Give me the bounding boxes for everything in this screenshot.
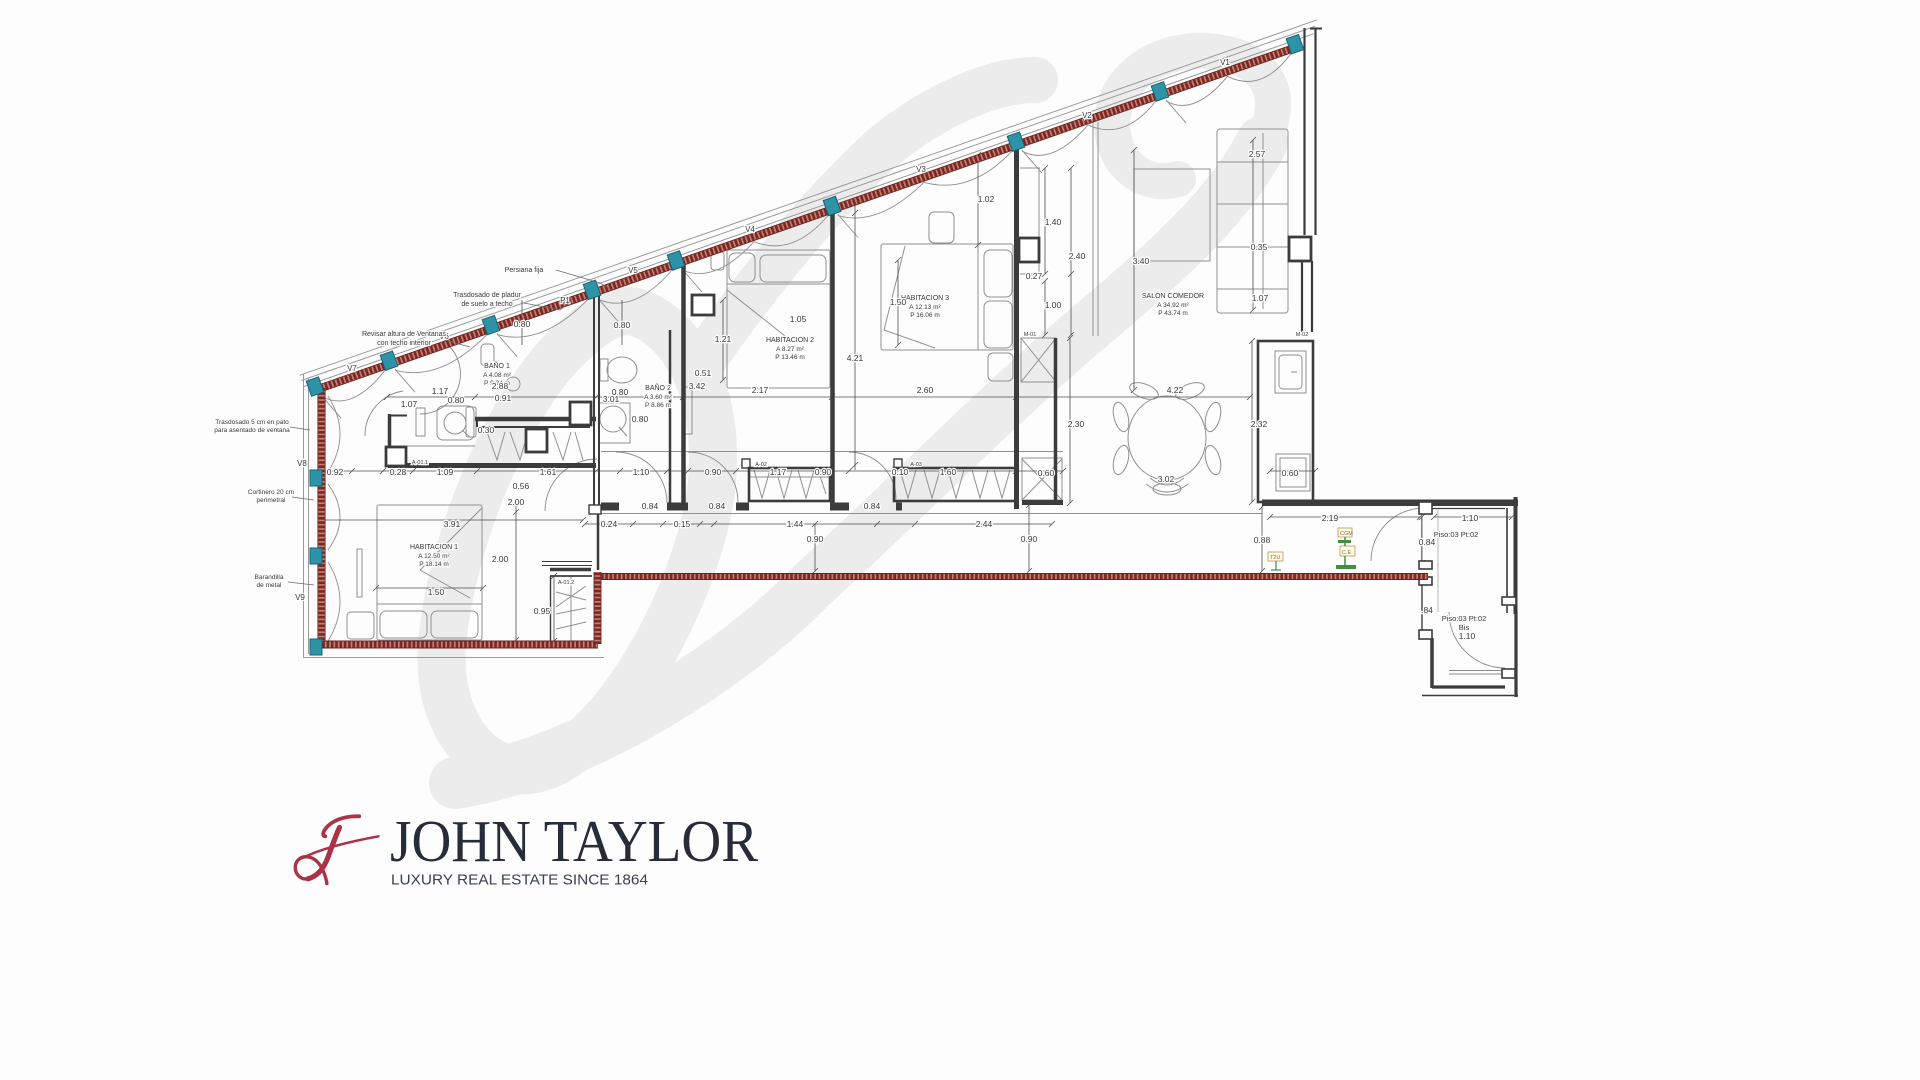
svg-text:JOHN TAYLOR: JOHN TAYLOR <box>390 808 759 874</box>
svg-text:V3: V3 <box>916 165 926 174</box>
svg-text:0.28: 0.28 <box>390 467 407 477</box>
svg-text:0.35: 0.35 <box>1251 242 1268 252</box>
svg-text:0.88: 0.88 <box>1254 535 1271 545</box>
svg-text:2.19: 2.19 <box>1322 513 1339 523</box>
svg-text:P 43.74 m: P 43.74 m <box>1158 310 1188 317</box>
svg-text:P 18.14 m: P 18.14 m <box>419 561 449 568</box>
svg-text:A 3.60 m²: A 3.60 m² <box>644 394 673 401</box>
svg-text:0.24: 0.24 <box>601 519 618 529</box>
svg-text:3.02: 3.02 <box>1158 474 1175 484</box>
svg-text:CGM: CGM <box>1340 531 1353 537</box>
svg-text:0.80: 0.80 <box>514 319 531 329</box>
svg-text:0.91: 0.91 <box>495 393 512 403</box>
svg-text:1.05: 1.05 <box>790 314 807 324</box>
svg-text:0.84: 0.84 <box>864 501 881 511</box>
svg-text:V1: V1 <box>1220 58 1230 67</box>
svg-text:0.90: 0.90 <box>1021 534 1038 544</box>
svg-text:SALÓN COMEDOR: SALÓN COMEDOR <box>1142 291 1204 300</box>
svg-text:P 8.86 m: P 8.86 m <box>645 402 671 409</box>
svg-text:para asentado de ventana: para asentado de ventana <box>214 427 290 434</box>
svg-text:1.02: 1.02 <box>978 194 995 204</box>
svg-text:P1: P1 <box>560 296 570 305</box>
svg-text:3.42: 3.42 <box>689 381 706 391</box>
svg-text:4.22: 4.22 <box>1167 385 1184 395</box>
svg-text:1.40: 1.40 <box>1045 217 1062 227</box>
svg-text:A-03: A-03 <box>910 462 922 468</box>
svg-text:V9: V9 <box>295 593 305 602</box>
svg-text:0.10: 0.10 <box>892 467 909 477</box>
svg-text:2.32: 2.32 <box>1251 419 1268 429</box>
svg-text:1.10: 1.10 <box>633 467 650 477</box>
svg-text:Trasdosado 5 cm en pato: Trasdosado 5 cm en pato <box>215 419 289 426</box>
svg-text:Persiana fija: Persiana fija <box>505 267 544 274</box>
svg-text:1.61: 1.61 <box>540 467 557 477</box>
svg-text:1.09: 1.09 <box>437 467 454 477</box>
svg-text:0.56: 0.56 <box>513 481 530 491</box>
svg-text:3.91: 3.91 <box>444 519 461 529</box>
svg-text:2.17: 2.17 <box>752 385 769 395</box>
svg-text:1.10: 1.10 <box>1459 631 1476 641</box>
svg-text:M-02: M-02 <box>1296 332 1309 338</box>
svg-text:3.40: 3.40 <box>1133 256 1150 266</box>
svg-text:Cortinero 20 cm: Cortinero 20 cm <box>248 489 294 496</box>
svg-text:0.90: 0.90 <box>815 467 832 477</box>
svg-text:0.15: 0.15 <box>674 519 691 529</box>
svg-text:0.80: 0.80 <box>448 395 465 405</box>
svg-text:0.90: 0.90 <box>807 534 824 544</box>
svg-text:A-01.1: A-01.1 <box>412 460 428 466</box>
svg-text:A 12.50 m²: A 12.50 m² <box>418 553 450 560</box>
svg-text:0.60: 0.60 <box>1038 468 1055 478</box>
svg-text:A 4.08 m²: A 4.08 m² <box>483 372 512 379</box>
svg-text:Piso:03 Pt:02: Piso:03 Pt:02 <box>1434 530 1479 539</box>
svg-text:0.51: 0.51 <box>695 368 712 378</box>
svg-text:2.00: 2.00 <box>492 554 509 564</box>
svg-text:V8: V8 <box>297 459 307 468</box>
svg-text:A 8.27 m²: A 8.27 m² <box>776 346 805 353</box>
svg-text:2.00: 2.00 <box>508 497 525 507</box>
svg-text:0.60: 0.60 <box>1282 468 1299 478</box>
svg-text:2.60: 2.60 <box>917 385 934 395</box>
svg-text:Piso:03 Pt:02: Piso:03 Pt:02 <box>1442 614 1487 623</box>
svg-text:HABITACION 1: HABITACION 1 <box>410 544 458 551</box>
svg-text:LUXURY REAL ESTATE SINCE 1864: LUXURY REAL ESTATE SINCE 1864 <box>391 873 648 889</box>
svg-text:V5: V5 <box>628 266 638 275</box>
svg-text:A 12.13 m²: A 12.13 m² <box>909 304 941 311</box>
svg-text:V4: V4 <box>745 225 755 234</box>
svg-text:T2U: T2U <box>1270 555 1280 561</box>
svg-text:Revisar altura de Ventanas: Revisar altura de Ventanas <box>362 331 447 338</box>
svg-text:0.84: 0.84 <box>642 501 659 511</box>
svg-text:2.30: 2.30 <box>1068 419 1085 429</box>
svg-text:1.07: 1.07 <box>401 399 418 409</box>
svg-text:1.60: 1.60 <box>940 467 957 477</box>
svg-text:1.17: 1.17 <box>432 386 449 396</box>
svg-text:A-02: A-02 <box>755 462 767 468</box>
svg-text:HABITACION 3: HABITACION 3 <box>901 295 949 302</box>
svg-text:0.80: 0.80 <box>614 320 631 330</box>
svg-text:1.17: 1.17 <box>770 467 787 477</box>
svg-text:0.27: 0.27 <box>1026 271 1043 281</box>
svg-text:4.21: 4.21 <box>847 353 864 363</box>
svg-text:0.30: 0.30 <box>478 425 495 435</box>
svg-text:Trasdosado de pladur: Trasdosado de pladur <box>453 292 522 299</box>
svg-text:Bis: Bis <box>1459 623 1470 632</box>
svg-text:de suelo a techo: de suelo a techo <box>461 301 512 308</box>
svg-text:BAÑO 2: BAÑO 2 <box>645 383 671 392</box>
svg-text:2.40: 2.40 <box>1069 251 1086 261</box>
svg-text:A-01.2: A-01.2 <box>558 580 574 586</box>
svg-text:2.88: 2.88 <box>492 381 509 391</box>
svg-text:1.00: 1.00 <box>1045 300 1062 310</box>
svg-text:V7: V7 <box>347 364 357 373</box>
svg-text:1.50: 1.50 <box>890 297 907 307</box>
svg-text:0.92: 0.92 <box>327 467 344 477</box>
svg-text:P 13.46 m: P 13.46 m <box>775 354 805 361</box>
svg-text:0.80: 0.80 <box>632 414 649 424</box>
svg-text:A 34.92 m²: A 34.92 m² <box>1157 302 1189 309</box>
svg-text:V2: V2 <box>1082 111 1092 120</box>
svg-text:1.44: 1.44 <box>787 519 804 529</box>
svg-text:0.84: 0.84 <box>709 501 726 511</box>
svg-text:Barandilla: Barandilla <box>255 574 284 581</box>
svg-text:con techo interior: con techo interior <box>377 340 431 347</box>
svg-text:C.E: C.E <box>1342 550 1352 556</box>
svg-text:BAÑO 1: BAÑO 1 <box>484 361 510 370</box>
svg-text:1.21: 1.21 <box>715 334 732 344</box>
svg-text:2.44: 2.44 <box>976 519 993 529</box>
svg-text:1.10: 1.10 <box>1462 513 1479 523</box>
svg-text:HABITACION 2: HABITACION 2 <box>766 337 814 344</box>
svg-text:P 16.06 m: P 16.06 m <box>910 312 940 319</box>
svg-text:1.50: 1.50 <box>428 587 445 597</box>
svg-text:0.95: 0.95 <box>534 606 551 616</box>
svg-text:0.90: 0.90 <box>705 467 722 477</box>
svg-text:de metal: de metal <box>257 582 282 589</box>
svg-text:3.01: 3.01 <box>603 394 620 404</box>
svg-text:1.07: 1.07 <box>1252 293 1269 303</box>
svg-text:2.57: 2.57 <box>1249 149 1266 159</box>
svg-text:M-01: M-01 <box>1024 332 1037 338</box>
svg-text:.84: .84 <box>1421 605 1433 615</box>
svg-text:perimetral: perimetral <box>257 497 286 504</box>
